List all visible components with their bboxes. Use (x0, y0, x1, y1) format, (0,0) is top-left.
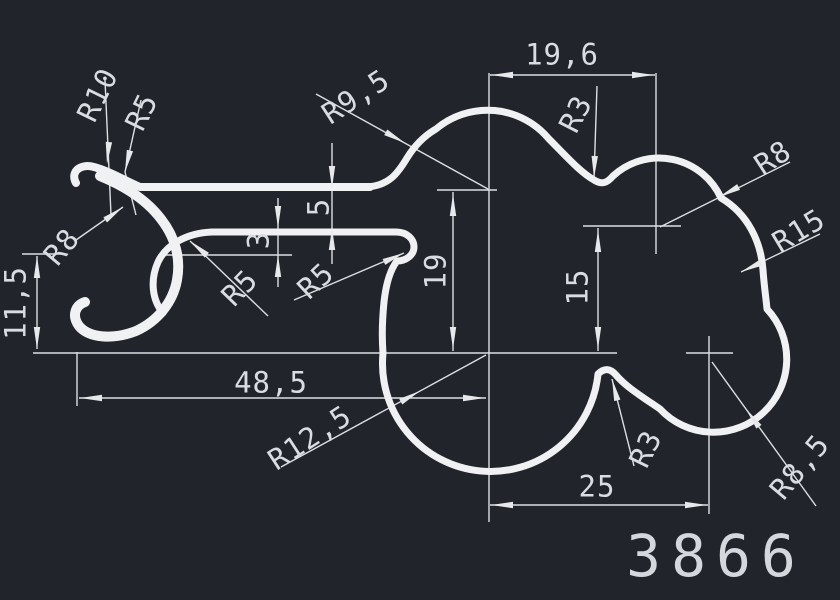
part-number: 3866 (626, 527, 806, 585)
dim-label-3: 3 (245, 231, 274, 249)
drawing-svg (0, 0, 840, 600)
arrowhead (34, 256, 40, 278)
arrowhead (463, 395, 485, 401)
dim-label-48-5: 48,5 (234, 369, 308, 398)
arrowhead (491, 502, 513, 508)
arrowhead (491, 72, 513, 78)
arrowhead (632, 72, 654, 78)
arrowhead (740, 260, 763, 275)
profile-lower-arm (153, 232, 414, 353)
dim-label-19-6: 19,6 (525, 41, 599, 70)
arrowhead (399, 388, 421, 404)
dim-label-15: 15 (564, 269, 593, 306)
dim-label-25: 25 (579, 473, 616, 502)
arrowhead (685, 502, 707, 508)
arrowhead (450, 327, 456, 349)
arrowhead (275, 255, 281, 277)
dim-label-19: 19 (422, 253, 451, 290)
arrowhead (275, 206, 281, 228)
arrowhead (80, 395, 102, 401)
profile-outline (74, 110, 787, 471)
arrowhead (122, 150, 133, 173)
arrowhead (450, 194, 456, 216)
arrowhead (595, 230, 601, 252)
dim-label-5: 5 (305, 198, 334, 216)
cad-drawing-canvas: R10 R5 R8 11,5 R5 R5 3 5 R9,5 19 48,5 R1… (0, 0, 840, 600)
dim-label-11-5: 11,5 (2, 266, 31, 340)
arrowhead (595, 327, 601, 349)
arrowhead (384, 130, 406, 146)
arrowhead (34, 327, 40, 349)
